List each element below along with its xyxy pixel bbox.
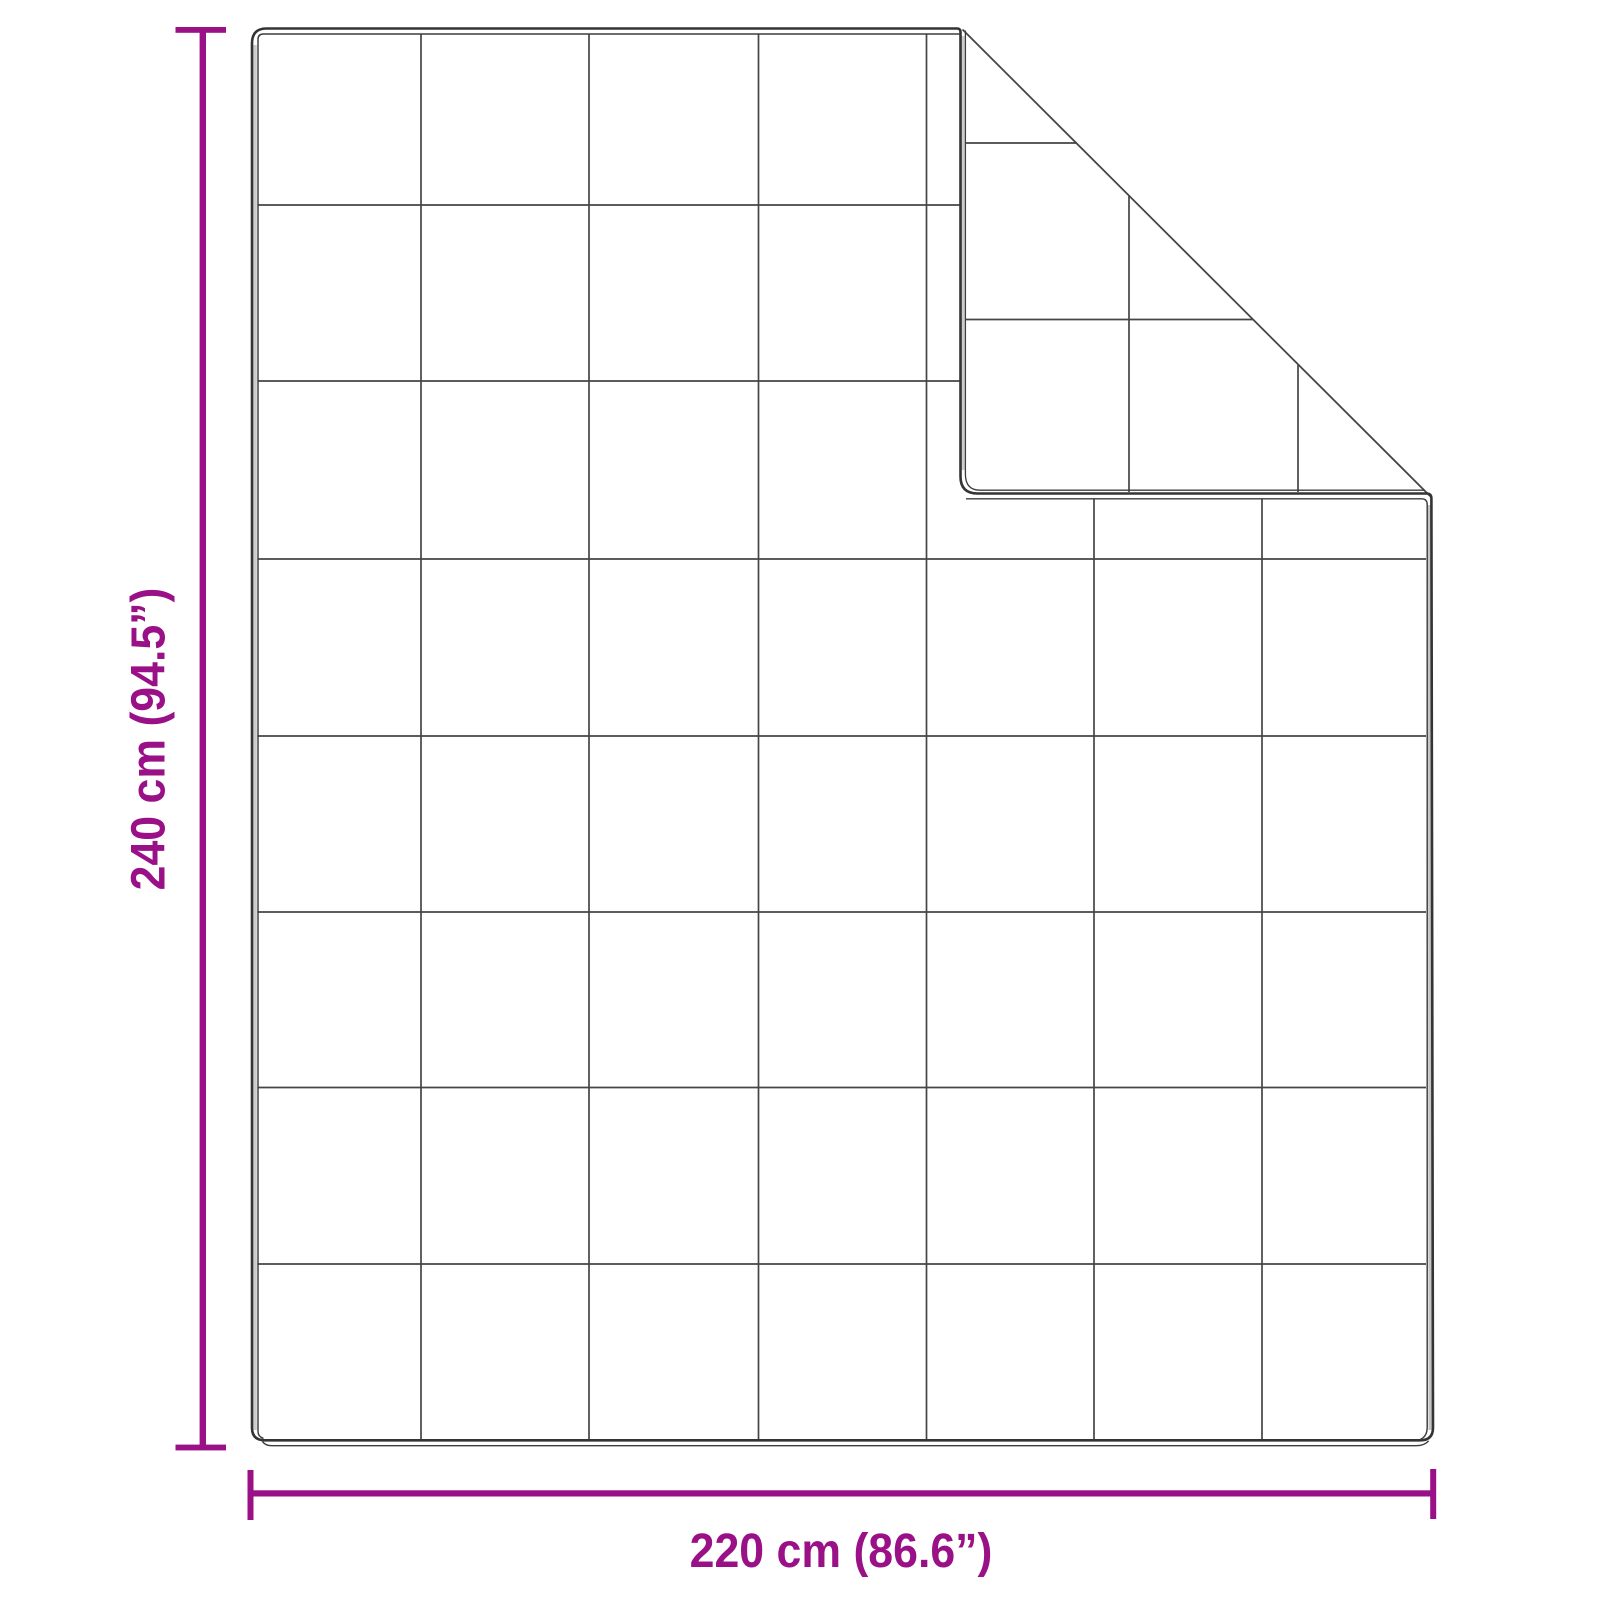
svg-text:220 cm (86.6”): 220 cm (86.6”) <box>690 1524 993 1578</box>
svg-text:240 cm (94.5”): 240 cm (94.5”) <box>121 588 175 891</box>
